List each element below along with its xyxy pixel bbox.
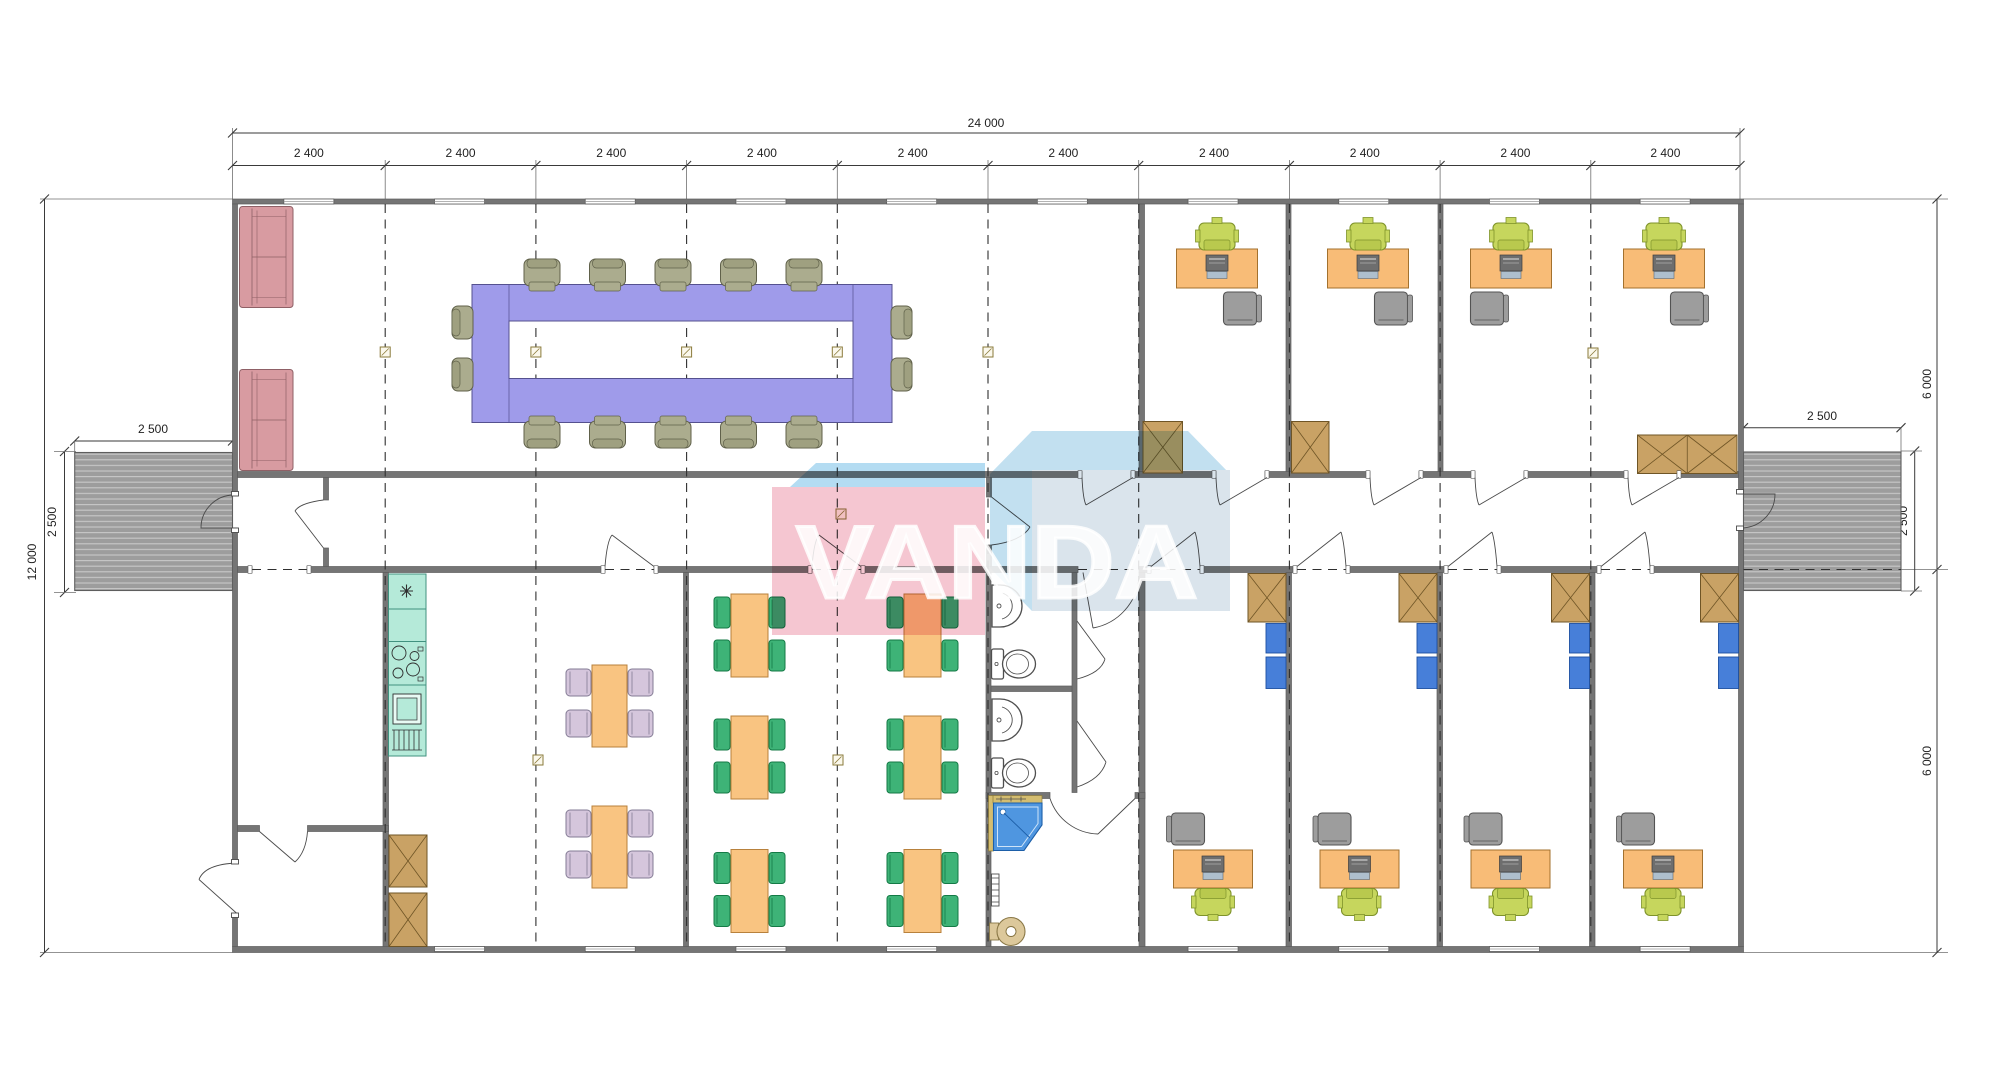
svg-text:24 000: 24 000 [968, 116, 1005, 130]
svg-text:2 500: 2 500 [1807, 409, 1837, 423]
svg-text:2 400: 2 400 [1500, 146, 1530, 160]
svg-text:2 400: 2 400 [294, 146, 324, 160]
svg-text:2 400: 2 400 [1048, 146, 1078, 160]
svg-text:6 000: 6 000 [1920, 746, 1934, 776]
svg-text:2 400: 2 400 [446, 146, 476, 160]
svg-text:12 000: 12 000 [25, 543, 39, 580]
svg-text:2 400: 2 400 [596, 146, 626, 160]
svg-text:2 400: 2 400 [747, 146, 777, 160]
svg-text:2 400: 2 400 [898, 146, 928, 160]
svg-text:2 400: 2 400 [1650, 146, 1680, 160]
svg-text:2 500: 2 500 [138, 422, 168, 436]
svg-text:VANDA: VANDA [796, 505, 1198, 621]
svg-text:6 000: 6 000 [1920, 369, 1934, 399]
svg-text:2 500: 2 500 [45, 507, 59, 537]
svg-text:2 400: 2 400 [1350, 146, 1380, 160]
svg-text:2 400: 2 400 [1199, 146, 1229, 160]
